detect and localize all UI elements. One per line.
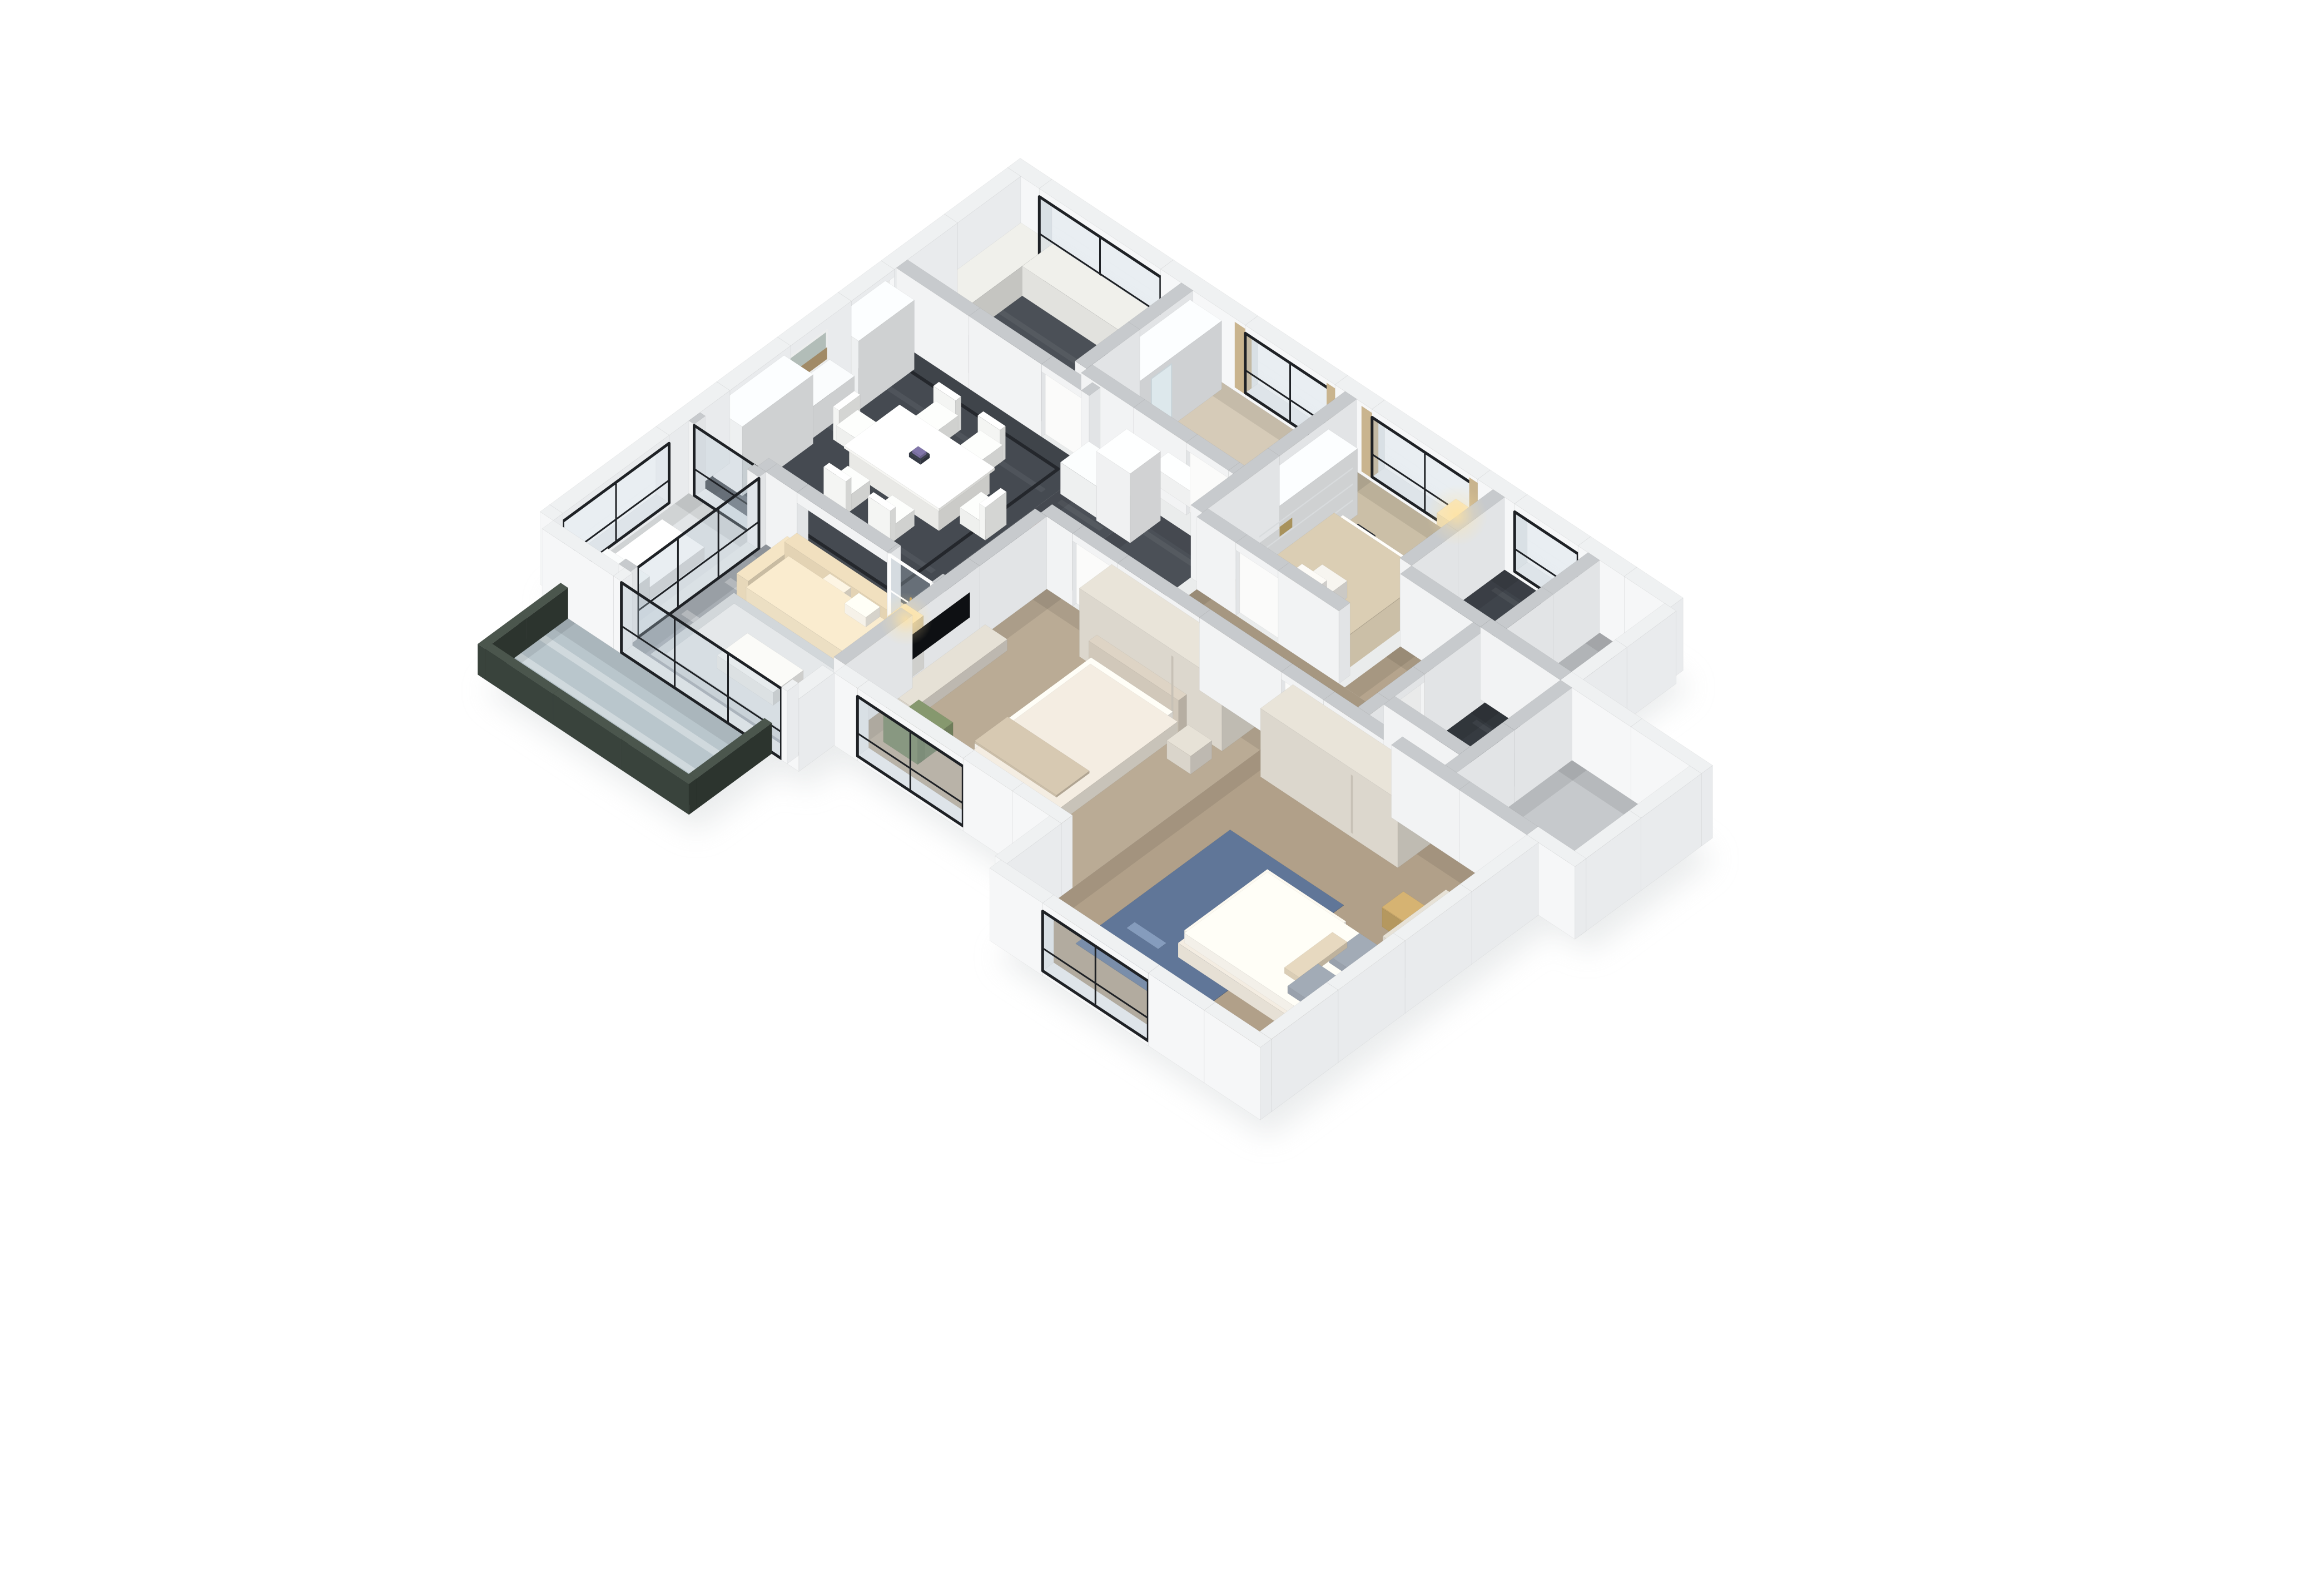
balcony-railing-west xyxy=(478,644,485,679)
walls-and-furniture-layer xyxy=(478,158,1712,1120)
dining-chairs xyxy=(890,507,896,544)
balcony-railing-south xyxy=(689,779,696,815)
wall-south-master xyxy=(1260,1039,1272,1120)
wall-north-annex xyxy=(1701,766,1712,846)
wall-south-living-glass xyxy=(782,687,787,763)
lamp-glow xyxy=(879,593,932,646)
wall-south-step xyxy=(1575,858,1586,939)
lamp-glow xyxy=(1426,485,1487,546)
wall-south-bedroom2 xyxy=(1061,815,1072,896)
dining-chairs xyxy=(846,478,851,515)
wall-south-living-glass xyxy=(787,683,798,763)
apartment-3d-floorplan xyxy=(0,0,2324,1588)
dining-chairs xyxy=(980,504,986,540)
wall-study-south xyxy=(1339,603,1350,683)
bedroom2-wardrobe xyxy=(1171,656,1174,715)
master-wardrobe xyxy=(1351,775,1353,834)
floorplan-render-canvas xyxy=(0,0,2324,1588)
